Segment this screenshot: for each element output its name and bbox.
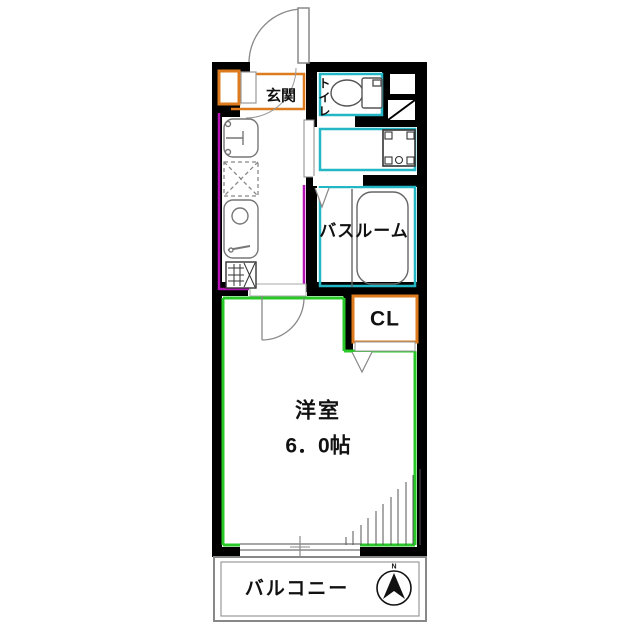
room-door-swing-icon [250,284,306,340]
sliding-window-icon [240,536,360,558]
closet-label: CL [370,309,400,330]
hatch-lines [346,469,420,545]
bathroom-door-icon [313,176,363,207]
toilet-label: トイレ [318,77,330,139]
room-size-label: 6．0帖 [285,436,350,457]
balcony-label: バルコニー [245,580,350,599]
north-compass-icon [377,571,411,605]
refrigerator-space-icon [224,162,258,196]
kitchen-sink-icon [224,200,258,258]
folding-door-icon [352,342,415,372]
washer-pan-icon [383,130,415,166]
stove-icon [226,262,256,288]
washroom-door-icon [304,120,314,177]
compass-north-label: N [391,564,396,571]
wash-basin-icon [224,119,258,157]
bathroom-label: バスルーム [319,223,409,240]
floor-plan: 玄関 トイレ バスルーム CL 洋室 6．0帖 バルコニー N [0,0,639,640]
room-name-label: 洋室 [295,401,341,422]
toilet-bowl-icon [331,78,382,108]
shoe-cabinet-icon [241,72,256,103]
genkan-label: 玄関 [266,89,296,104]
